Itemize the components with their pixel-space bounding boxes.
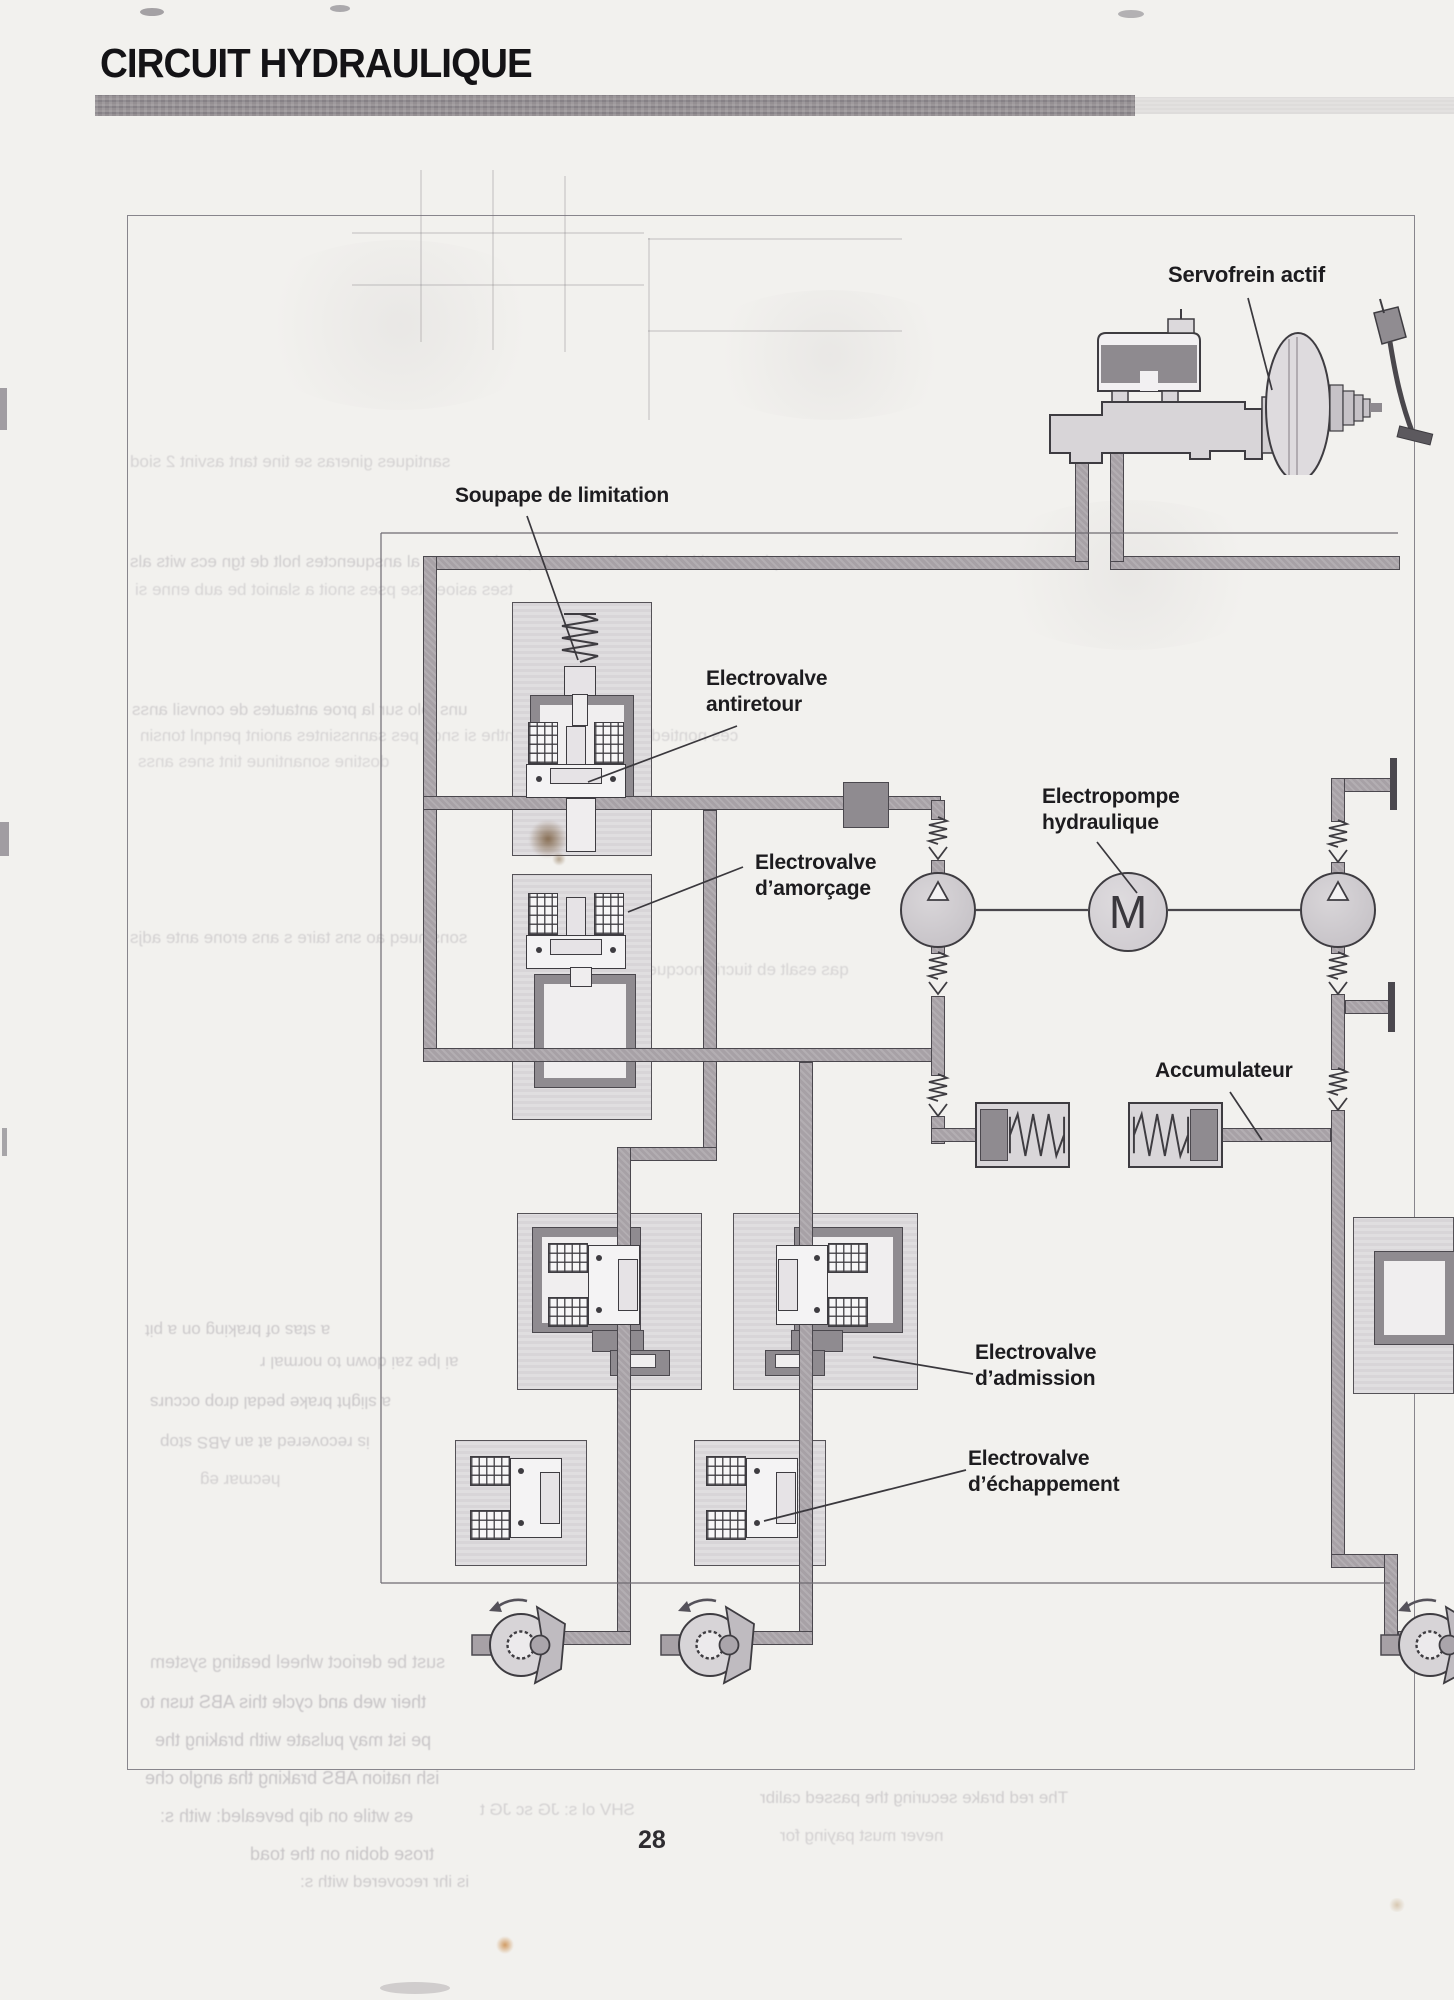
label-electropompe: Electropompe hydraulique [1042, 784, 1180, 836]
coil-icon [528, 893, 558, 935]
pipe [624, 1147, 717, 1161]
label-line: Electrovalve [755, 850, 876, 876]
pipe [931, 1128, 977, 1142]
bleed-line [352, 232, 644, 234]
valve-channel [535, 975, 635, 1087]
coil-icon [828, 1243, 868, 1273]
brake-caliper-icon [1380, 1597, 1454, 1693]
valve-port-dot [596, 1307, 602, 1313]
stain [1388, 1898, 1406, 1912]
pipe [617, 1147, 631, 1638]
motor-letter: M [1109, 886, 1147, 938]
pump-triangle-icon [926, 880, 950, 902]
bleed-text: their web and cycle this ABS tusn to [140, 1692, 426, 1713]
label-line: Electrovalve [706, 666, 827, 692]
coil-icon [594, 893, 624, 935]
scan-edge-mark [2, 1128, 7, 1156]
accumulator-piston [1190, 1109, 1218, 1161]
bleed-line [648, 238, 902, 240]
pipe [931, 996, 945, 1076]
title-underline-bar-tail [1135, 97, 1454, 114]
pump-triangle-icon [1326, 880, 1350, 902]
bleed-text: a slight brake pedal drop occurs [150, 1392, 391, 1412]
check-valve-icon [1326, 950, 1350, 996]
valve-spool [778, 1259, 798, 1311]
solenoid-valve-echappement-right [706, 1456, 798, 1540]
pipe [1331, 1110, 1345, 1568]
check-valve-icon [926, 1072, 950, 1118]
bleed-text: The red brake securing the passed calibr [760, 1788, 1068, 1808]
coil-icon [828, 1297, 868, 1327]
bleed-text: is recovered at an ABS stop [160, 1432, 370, 1452]
valve-spool [618, 1259, 638, 1311]
cylinder-body [1050, 402, 1262, 463]
electric-motor-symbol: M [1088, 872, 1168, 952]
label-line: d’amorçage [755, 876, 876, 902]
reservoir-port-icon [1388, 982, 1395, 1032]
bleed-text: tses asioes tse pses snoit a slaniot be … [135, 580, 513, 600]
bleed-line [564, 176, 566, 352]
scan-edge-mark [0, 822, 9, 856]
pipe [1222, 1128, 1331, 1142]
label-line: hydraulique [1042, 810, 1180, 836]
bleed-text: qas esalt eb tiucris nocquesne [620, 960, 849, 980]
scan-edge-mark [380, 1982, 450, 1994]
pipe [1331, 778, 1345, 822]
check-valve-icon [1326, 818, 1350, 864]
limitation-valve-body [564, 666, 596, 696]
pedal-bracket [1374, 307, 1406, 344]
bleed-text: uns tolo sur la proe antautes de convsil… [132, 700, 467, 720]
label-amorcage: Electrovalve d’amorçage [755, 850, 876, 902]
bleed-text: pe ist may pulsate with braking the [155, 1730, 431, 1751]
coil-icon [548, 1243, 588, 1273]
bleed-line [648, 238, 650, 420]
spring-icon [1008, 1109, 1066, 1161]
brake-caliper-icon [471, 1597, 575, 1693]
scan-edge-mark [140, 8, 164, 16]
stain [496, 1936, 514, 1954]
bleed-text: sonsinueq ao sns taire s ans erone ante … [130, 928, 467, 948]
brake-booster [1266, 333, 1330, 475]
bleed-line [420, 170, 422, 342]
valve-port-dot [754, 1468, 760, 1474]
check-valve-icon [926, 950, 950, 996]
coil-icon [470, 1456, 510, 1486]
accumulator-right [1128, 1102, 1223, 1168]
bleed-line [352, 284, 644, 286]
label-admission: Electrovalve d’admission [975, 1340, 1096, 1392]
label-line: d’admission [975, 1366, 1096, 1392]
valve-port-dot [610, 947, 616, 953]
bleed-line [492, 170, 494, 350]
coil-icon [548, 1297, 588, 1327]
pipe [423, 1048, 945, 1062]
valve-channel [1375, 1252, 1454, 1344]
label-line: Electrovalve [968, 1446, 1119, 1472]
limitation-spring-icon [558, 612, 602, 668]
valve-port-dot [596, 1255, 602, 1261]
label-line: d’échappement [968, 1472, 1119, 1498]
reservoir-port-icon [1390, 758, 1397, 810]
valve-port-dot [536, 947, 542, 953]
pipe [1331, 994, 1345, 1070]
valve-port-dot [814, 1255, 820, 1261]
bleed-text: SHV ol s: JG sc JG t [480, 1800, 635, 1820]
bleed-line [648, 330, 902, 332]
scan-edge-mark [0, 388, 7, 430]
valve-port-dot [518, 1468, 524, 1474]
valve-port-dot [754, 1520, 760, 1526]
bleed-text: sust be derioct wheel beating system [150, 1652, 445, 1673]
solenoid-valve-admission-right [776, 1243, 868, 1327]
spring-icon [1132, 1109, 1190, 1161]
pipe [1110, 556, 1400, 570]
bleed-text: never must paying for [780, 1826, 943, 1846]
brake-pedal-pad [1397, 426, 1433, 445]
valve-spool [550, 939, 602, 955]
pipe [799, 1062, 813, 1638]
reservoir-cap-icon [1168, 319, 1194, 333]
pipe [423, 796, 849, 810]
accumulator-piston [980, 1109, 1008, 1161]
bleed-text: a stas of braking on a pit [145, 1320, 330, 1340]
valve-spool [550, 768, 602, 784]
valve-spool [776, 1472, 796, 1524]
title-underline-bar [95, 95, 1135, 116]
pipe [1345, 1000, 1390, 1014]
scan-edge-mark [1118, 10, 1144, 18]
brake-pedal-arm [1390, 342, 1413, 434]
coil-icon [706, 1510, 746, 1540]
reservoir-slot [1140, 371, 1158, 391]
brake-caliper-icon [660, 1597, 764, 1693]
coil-icon [528, 722, 558, 764]
valve-port-dot [610, 776, 616, 782]
accumulator-left [975, 1102, 1070, 1168]
page-root: CIRCUIT HYDRAULIQUE santiques gineras se… [0, 0, 1454, 2000]
bleed-text: is ihr recovered with s: [300, 1872, 469, 1892]
check-valve-icon [926, 815, 950, 861]
solenoid-valve-echappement-left [470, 1456, 562, 1540]
solenoid-valve-admission-left [548, 1243, 640, 1327]
pipe [423, 556, 1089, 570]
label-soupape: Soupape de limitation [455, 483, 669, 509]
filter-block [843, 782, 889, 828]
solenoid-valve-antiretour [526, 722, 626, 800]
pipe [1338, 778, 1392, 792]
label-accumulateur: Accumulateur [1155, 1058, 1293, 1084]
bleed-text: trose dobin on the toad [250, 1844, 434, 1865]
bleed-text: es wtile on dip bevealed: with s: [160, 1806, 413, 1827]
label-servofrein: Servofrein actif [1168, 262, 1325, 288]
label-antiretour: Electrovalve antiretour [706, 666, 827, 718]
bleed-text: santiques gineras se tine tant asvint 2 … [130, 452, 450, 472]
valve-port-dot [518, 1520, 524, 1526]
bleed-text: hecmar eg [200, 1470, 280, 1490]
check-valve-icon [1326, 1066, 1350, 1112]
label-line: antiretour [706, 692, 827, 718]
pipe [703, 810, 717, 1161]
coil-icon [706, 1456, 746, 1486]
scan-edge-mark [330, 5, 350, 12]
bleed-text: ish nation ABS braking tha anglo che [145, 1768, 439, 1789]
label-echappement: Electrovalve d’échappement [968, 1446, 1119, 1498]
bleed-text: ai lpe zai down to normal r [260, 1352, 458, 1372]
coil-icon [594, 722, 624, 764]
valve-port-dot [814, 1307, 820, 1313]
label-line: Electrovalve [975, 1340, 1096, 1366]
valve-spool [540, 1472, 560, 1524]
valve-stem [566, 798, 596, 852]
coil-icon [470, 1510, 510, 1540]
page-title: CIRCUIT HYDRAULIQUE [100, 40, 532, 87]
stain [552, 852, 566, 866]
label-line: Electropompe [1042, 784, 1180, 810]
solenoid-valve-amorcage [526, 893, 626, 971]
bleed-text: dostine sonantinue tint snes anss [138, 752, 389, 772]
valve-stem [570, 967, 592, 987]
valve-port-dot [536, 776, 542, 782]
page-number: 28 [638, 1826, 666, 1855]
